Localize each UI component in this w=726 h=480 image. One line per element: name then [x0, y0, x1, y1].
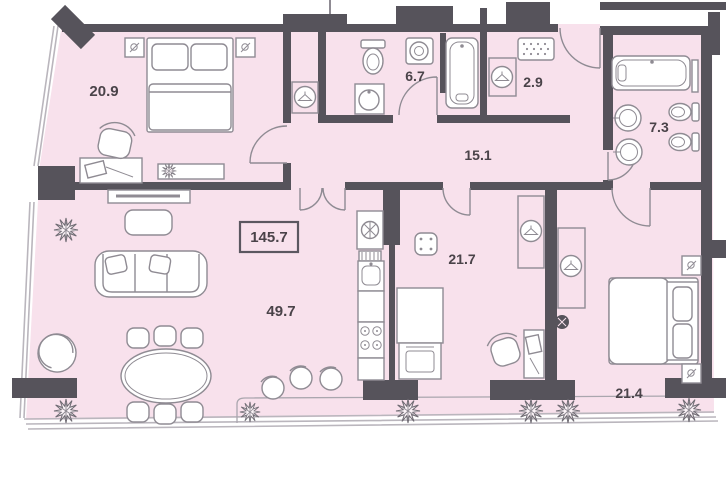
desk-icon [524, 330, 544, 378]
kitchen-cabinet-icon [358, 291, 384, 322]
dining-set-icon [121, 326, 211, 424]
wardrobe-hanger-icon [561, 256, 582, 277]
fridge-icon [357, 211, 383, 249]
pillow-icon [673, 287, 692, 321]
bidet-icon [669, 133, 699, 151]
desk-icon [80, 158, 142, 183]
wall-entry-west [480, 8, 487, 115]
room-label-bathroom-2: 7.3 [649, 119, 669, 135]
room-label-bedroom-1: 20.9 [89, 83, 118, 100]
total-area-value: 145.7 [250, 229, 288, 246]
dining-table-icon [121, 349, 211, 403]
bed-icon [609, 278, 698, 364]
toilet-icon [669, 103, 699, 121]
sofa-icon [95, 251, 207, 297]
wall-pier [396, 6, 453, 26]
wardrobe-hanger-icon [295, 87, 316, 108]
kitchen-island-icon [397, 288, 443, 343]
room-label-bedroom-2: 21.4 [615, 385, 642, 401]
wardrobe-hanger-icon [492, 67, 513, 88]
wall-hall-south [470, 182, 612, 190]
wall-bedroom1-east [283, 163, 291, 182]
corridor-wall-outside [600, 2, 726, 10]
wall-pier [490, 380, 575, 400]
pillow-icon [673, 324, 692, 358]
room-label-bathroom-1: 6.7 [405, 68, 425, 84]
wall-tub-niche [440, 33, 446, 93]
toilet-icon [361, 40, 385, 74]
planter-icon [555, 315, 569, 329]
wall-segment [600, 26, 712, 35]
room-label-living: 49.7 [266, 303, 295, 320]
chair-icon [154, 404, 176, 424]
room-label-hallway: 15.1 [464, 147, 491, 163]
dresser-icon [158, 164, 224, 179]
blanket-icon [609, 278, 669, 364]
kitchen-cabinet-icon [358, 358, 384, 380]
side-table-icon [415, 233, 437, 255]
vent-grille-icon [359, 251, 381, 261]
wardrobe-hanger-icon [521, 221, 542, 242]
pillow-icon [152, 44, 188, 70]
wall-bath2-south [650, 182, 712, 190]
wall-right [701, 34, 712, 398]
bathtub-icon [446, 38, 478, 108]
wall-pier [712, 240, 726, 258]
wall-kitchen-west [389, 245, 395, 382]
tv-console-icon [108, 190, 190, 203]
wall-hall-south [400, 182, 443, 190]
throw-pillow-icon [105, 254, 128, 275]
wall-bath2-west [603, 26, 613, 150]
chair-icon [154, 326, 176, 346]
total-area-badge: 145.7 [240, 222, 298, 252]
chair-icon [127, 402, 149, 422]
room-label-kitchen: 21.7 [448, 251, 475, 267]
doormat-icon [518, 38, 554, 60]
bathtub-icon [612, 56, 690, 90]
wall-pier [506, 2, 550, 26]
oven-icon [399, 343, 441, 379]
floor-plan-canvas: 20.9 6.7 2.9 7.3 15.1 49.7 21.7 21.4 145… [0, 0, 726, 480]
wall-pier [283, 14, 347, 26]
pillow-icon [191, 44, 227, 70]
wall-bedroom1-east [283, 30, 291, 123]
coffee-table-icon [125, 210, 172, 235]
wall-kitchen-east [545, 190, 557, 382]
bathroom-sink-icon [355, 84, 384, 114]
kitchen-sink-icon [358, 261, 384, 291]
floor-plan: 20.9 6.7 2.9 7.3 15.1 49.7 21.7 21.4 145… [0, 0, 726, 480]
washing-machine-icon [406, 38, 433, 64]
wall-pier [12, 378, 77, 398]
wall-closet [318, 30, 326, 115]
chair-icon [181, 328, 203, 348]
wall-hall-north [437, 115, 570, 123]
bed-icon [147, 38, 233, 132]
throw-pillow-icon [149, 254, 172, 274]
blanket-icon [149, 84, 231, 130]
room-label-entry: 2.9 [523, 74, 543, 90]
chair-icon [127, 328, 149, 348]
towel-rail-icon [692, 60, 698, 92]
chair-icon [181, 402, 203, 422]
wall-kitchen-pier [383, 182, 400, 245]
stove-icon [358, 322, 384, 358]
paper-icon [525, 335, 541, 354]
wall-pier [363, 380, 418, 400]
wall-hall-north [318, 115, 393, 123]
